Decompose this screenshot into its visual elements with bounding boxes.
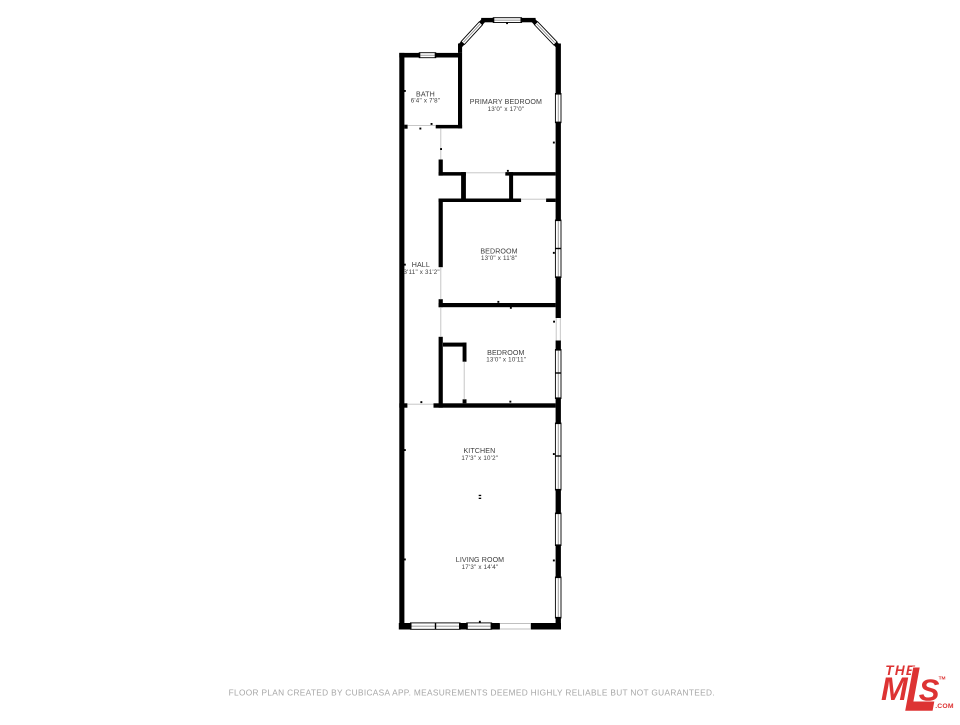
svg-text:17'3" x 14'4": 17'3" x 14'4" (462, 564, 499, 571)
svg-text:TM: TM (939, 675, 946, 681)
svg-text:3'11" x 31'2": 3'11" x 31'2" (404, 269, 440, 276)
svg-text:KITCHEN: KITCHEN (463, 447, 495, 455)
svg-text:13'0" x 10'11": 13'0" x 10'11" (486, 357, 526, 364)
svg-text:FLOOR PLAN CREATED BY CUBICASA: FLOOR PLAN CREATED BY CUBICASA APP. MEAS… (229, 688, 715, 698)
svg-text:LIVING ROOM: LIVING ROOM (456, 556, 504, 564)
svg-text:PRIMARY BEDROOM: PRIMARY BEDROOM (470, 98, 542, 106)
svg-text:13'0" x 11'8": 13'0" x 11'8" (481, 255, 517, 262)
svg-text:HALL: HALL (412, 261, 430, 269)
svg-text:17'3" x 10'2": 17'3" x 10'2" (461, 455, 498, 462)
svg-text:M: M (881, 671, 909, 707)
svg-text:6'4" x 7'8": 6'4" x 7'8" (411, 98, 440, 105)
svg-text:13'0" x 17'0": 13'0" x 17'0" (488, 106, 525, 113)
svg-text:.COM: .COM (935, 703, 954, 710)
